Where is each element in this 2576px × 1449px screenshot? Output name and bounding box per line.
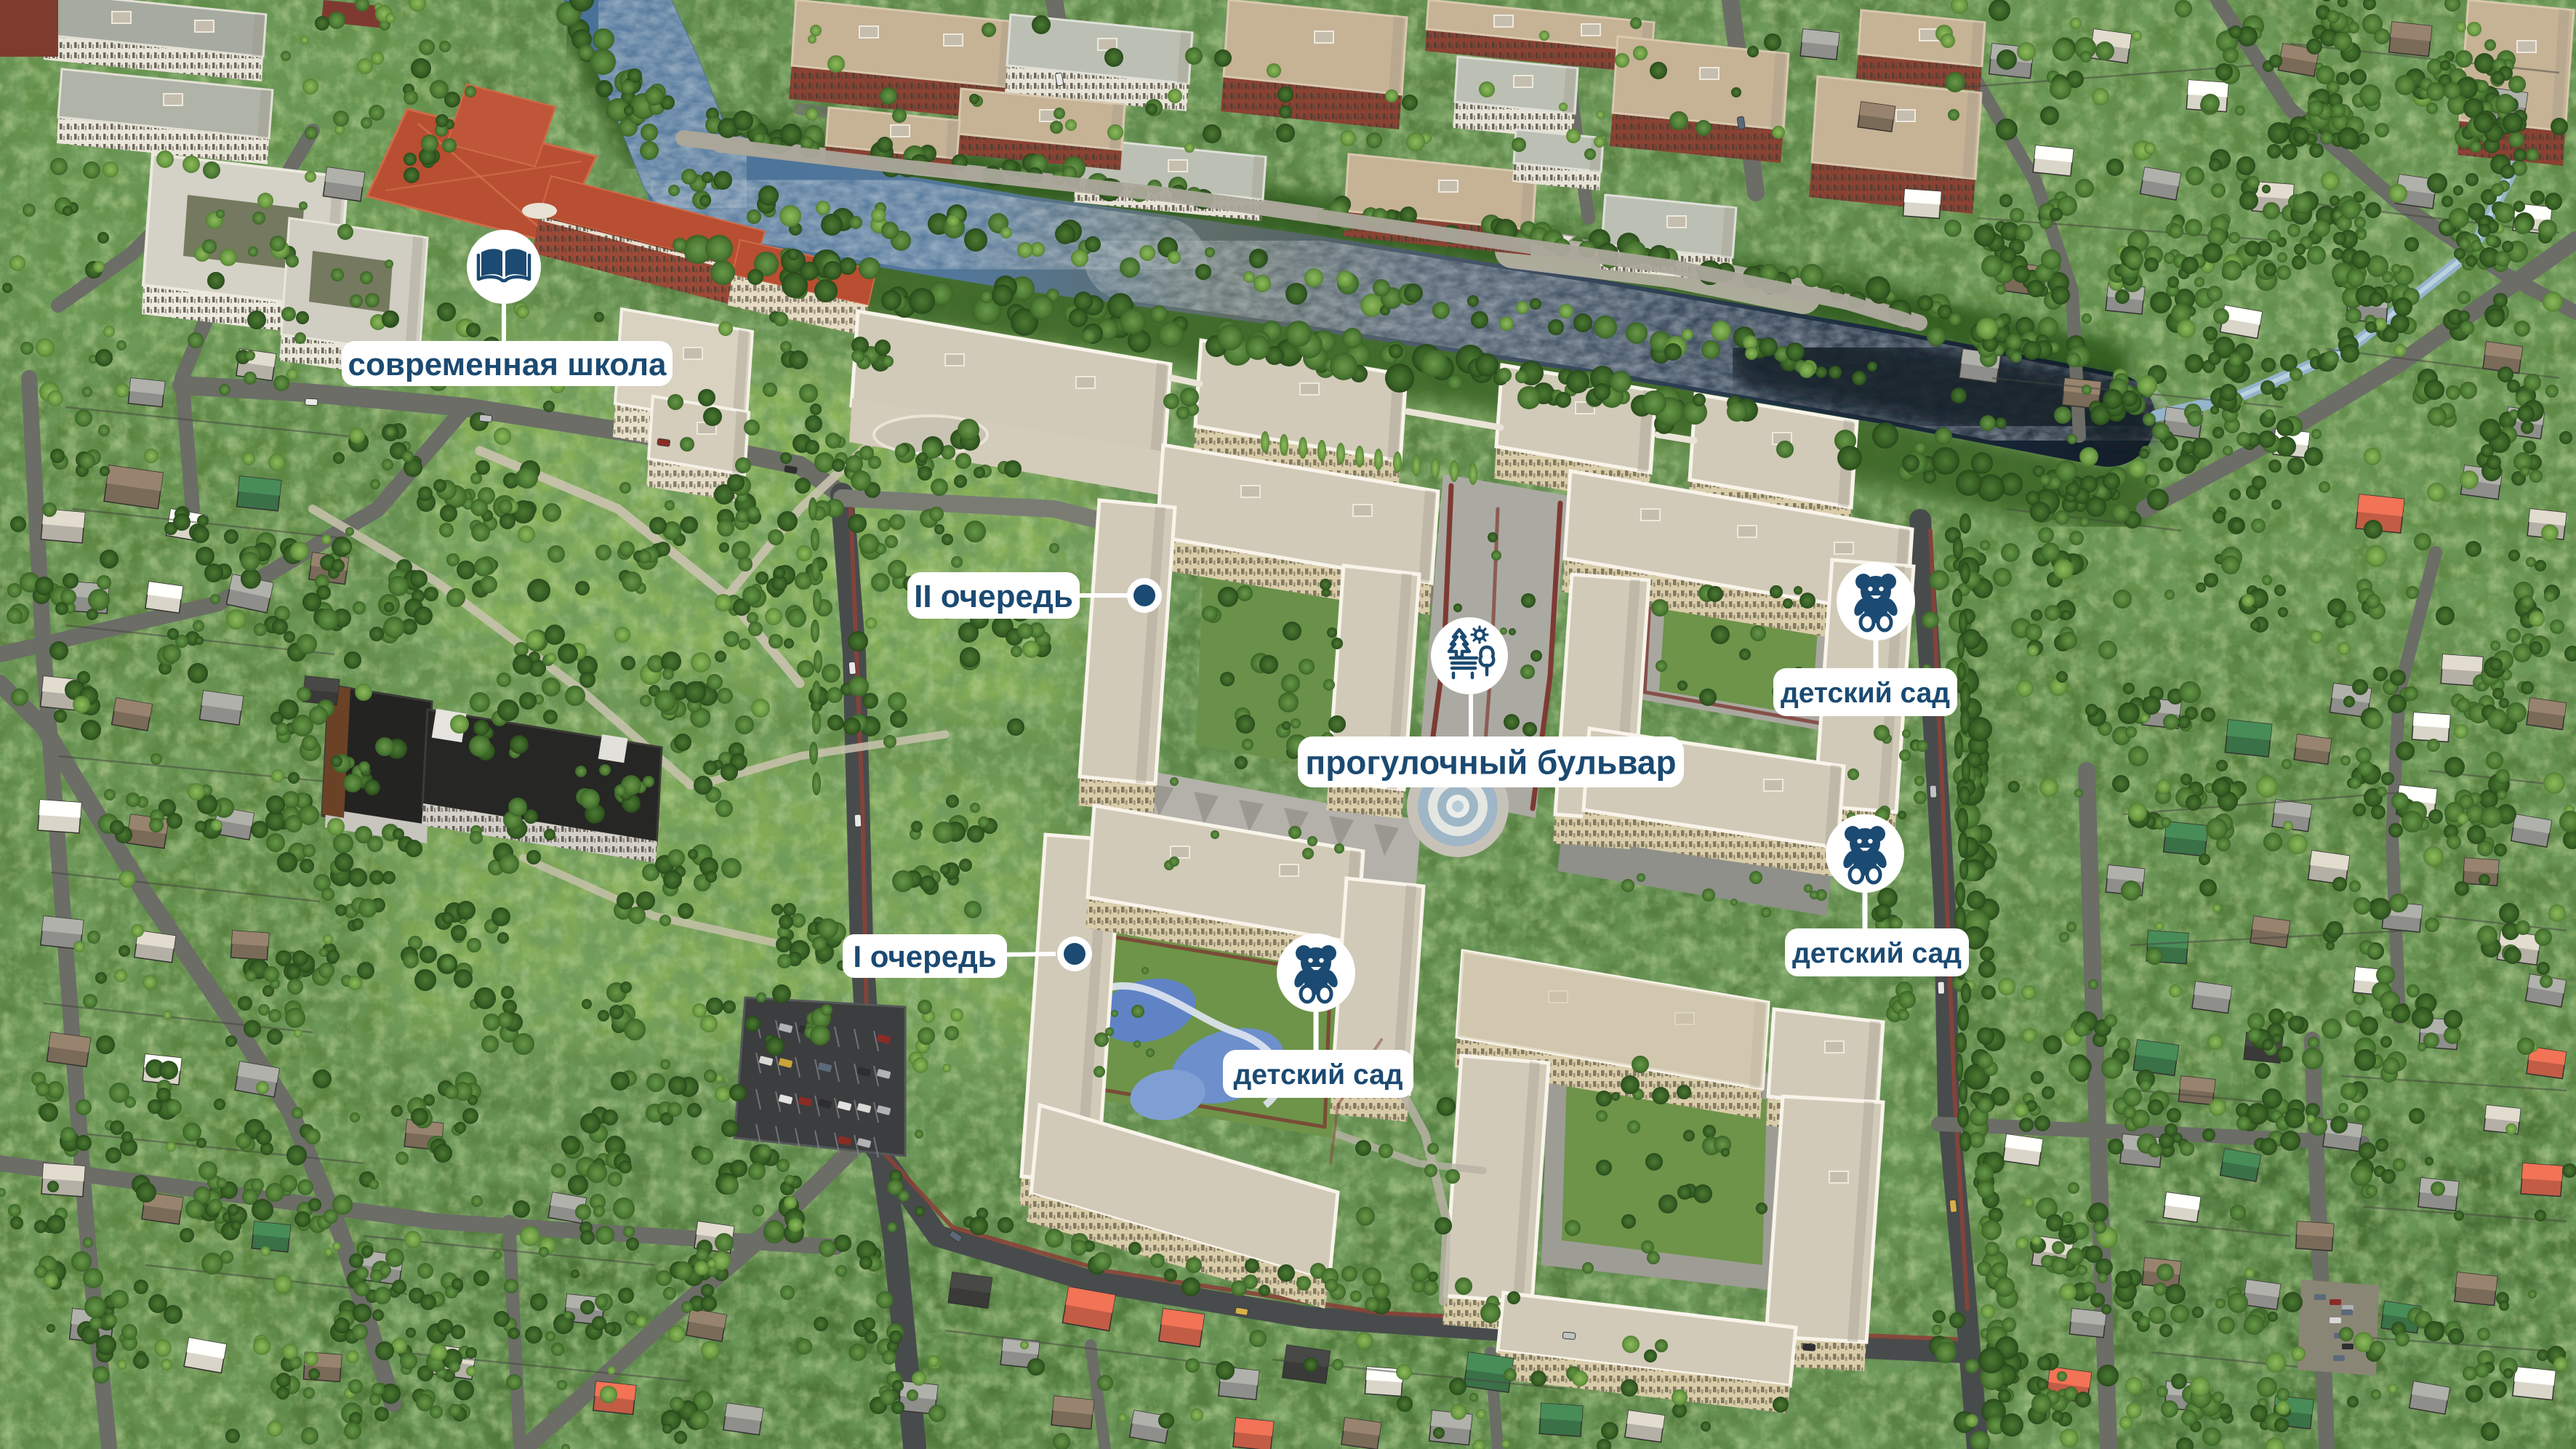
svg-text:детский сад: детский сад (1792, 938, 1962, 969)
svg-text:I очередь: I очередь (853, 939, 996, 974)
svg-text:детский сад: детский сад (1781, 678, 1950, 709)
svg-text:прогулочный бульвар: прогулочный бульвар (1305, 744, 1676, 782)
svg-text:II очередь: II очередь (914, 579, 1073, 614)
svg-text:современная школа: современная школа (348, 347, 667, 382)
svg-text:детский сад: детский сад (1233, 1059, 1403, 1091)
